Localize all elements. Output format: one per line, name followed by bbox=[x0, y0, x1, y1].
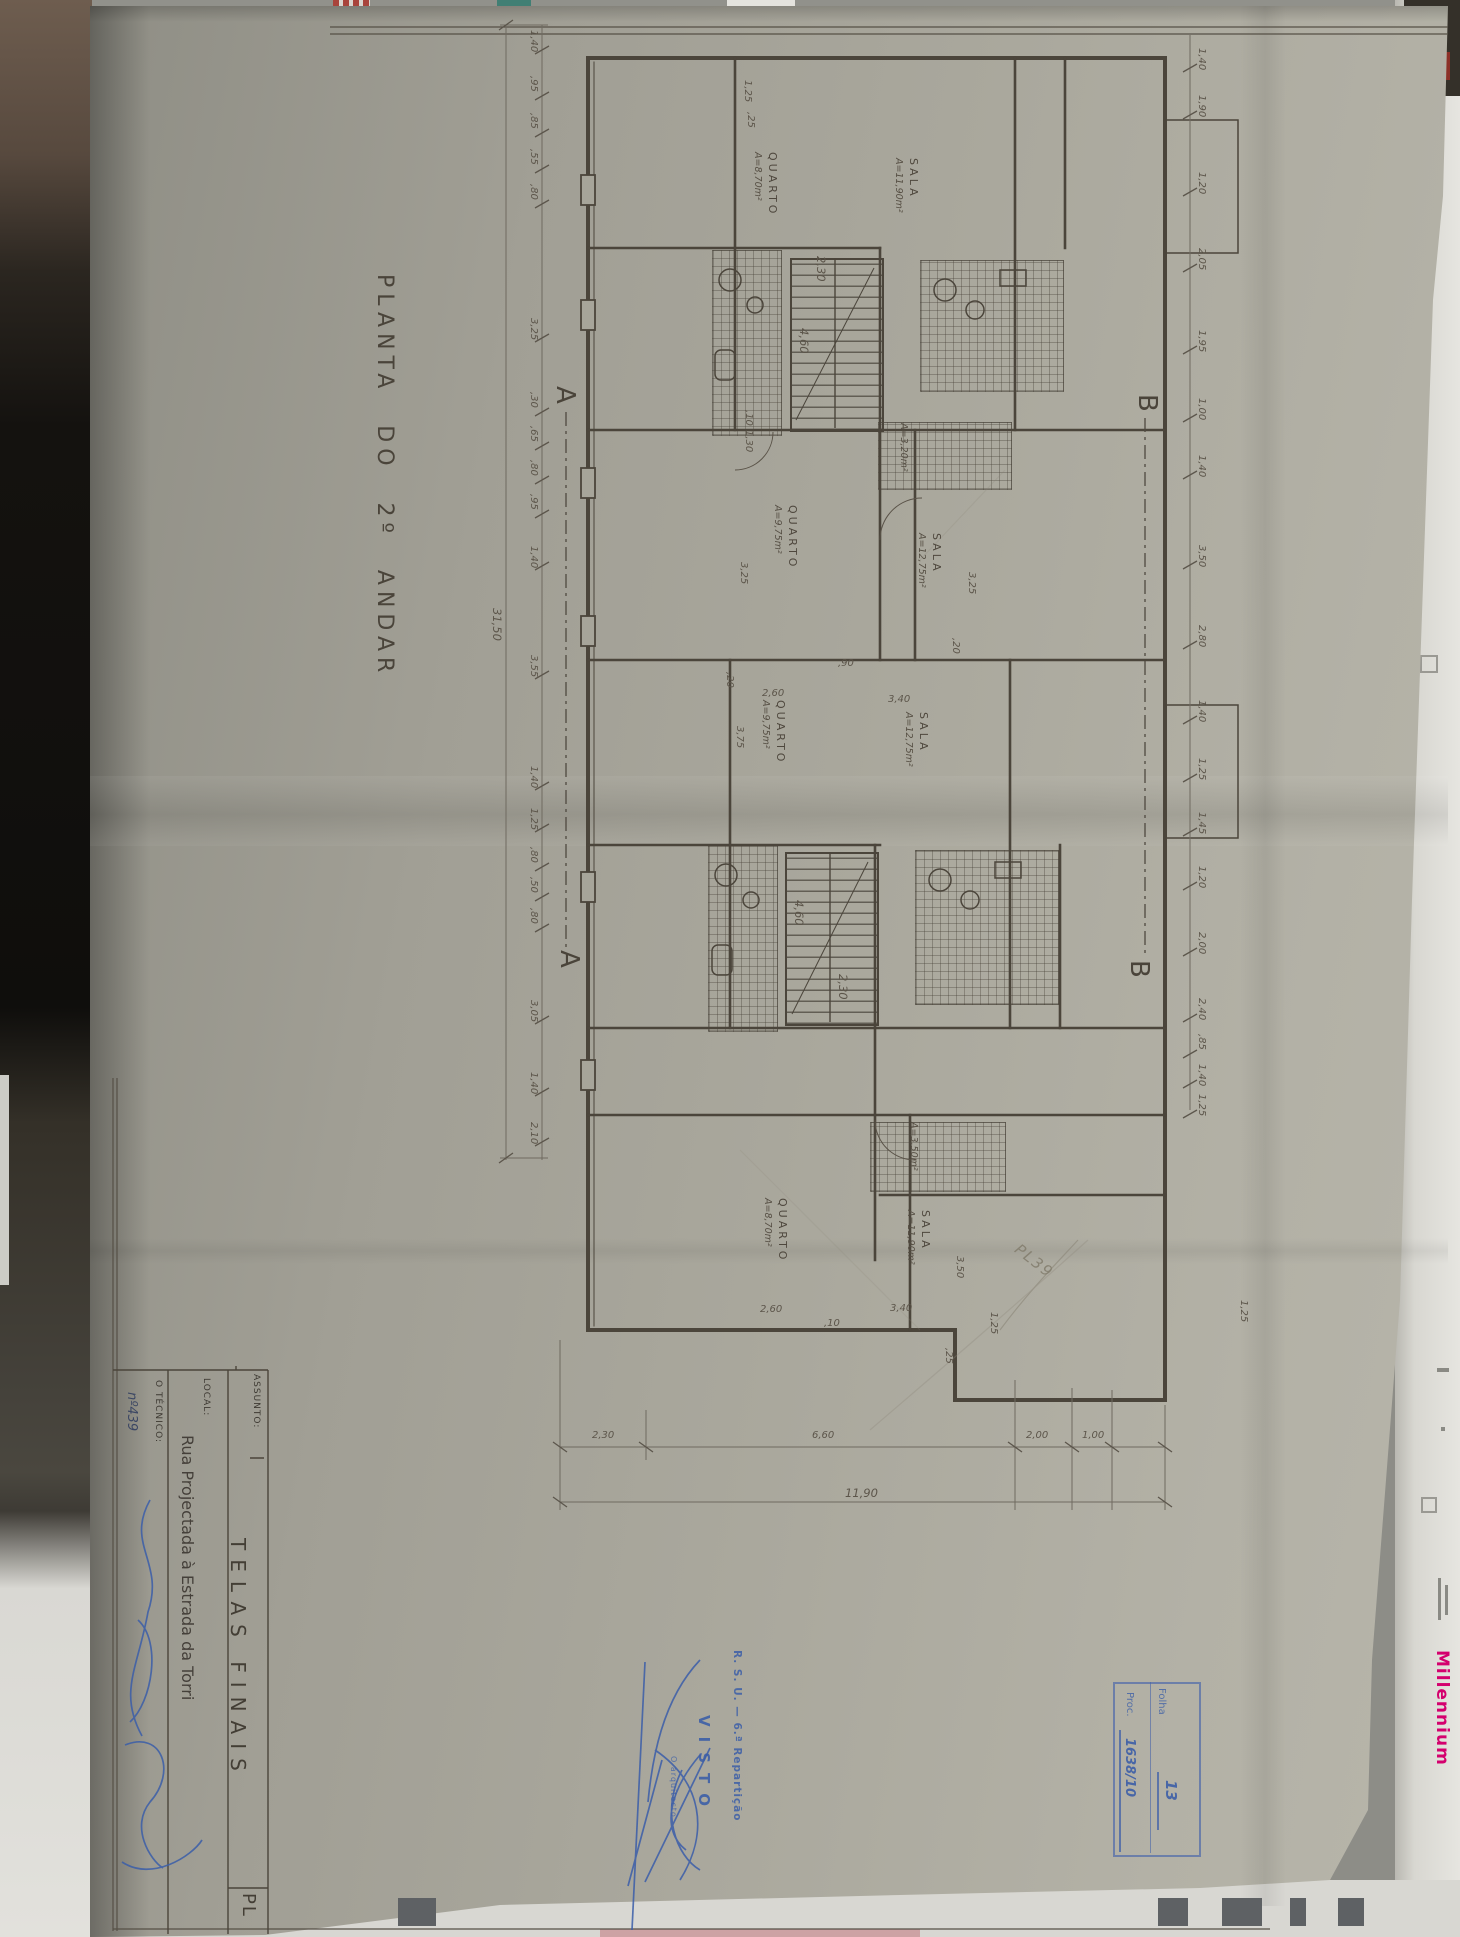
background-dark-square bbox=[1222, 1898, 1262, 1926]
kitchen-tiled-floor bbox=[915, 850, 1059, 1005]
background-dark-square bbox=[1338, 1898, 1364, 1926]
balcony-tiled-floor bbox=[870, 1122, 1006, 1192]
background-small-text-blur bbox=[1438, 1578, 1441, 1620]
bathroom-tiled-floor bbox=[712, 250, 782, 436]
background-dark-square bbox=[398, 1898, 436, 1926]
background-paper-sliver bbox=[0, 1075, 9, 1285]
background-mark bbox=[1441, 1427, 1445, 1431]
background-small-text-blur bbox=[1445, 1585, 1448, 1615]
background-dark-square bbox=[1158, 1898, 1188, 1926]
millennium-logo-text: Millennium bbox=[1432, 1650, 1452, 1766]
background-mark bbox=[1437, 1368, 1449, 1372]
photo-of-floor-plan: Millennium 2 bbox=[0, 0, 1460, 1937]
background-bottom-edge-tint bbox=[600, 1929, 920, 1937]
staircase bbox=[790, 258, 884, 432]
staircase bbox=[785, 852, 879, 1026]
bathroom-tiled-floor bbox=[708, 844, 778, 1032]
background-left-edge bbox=[0, 0, 92, 1937]
checkbox-glyph bbox=[1420, 655, 1438, 673]
balcony-tiled-floor bbox=[878, 422, 1012, 490]
kitchen-tiled-floor bbox=[920, 260, 1064, 392]
background-dark-square bbox=[1290, 1898, 1306, 1926]
checkbox-glyph bbox=[1421, 1497, 1437, 1513]
